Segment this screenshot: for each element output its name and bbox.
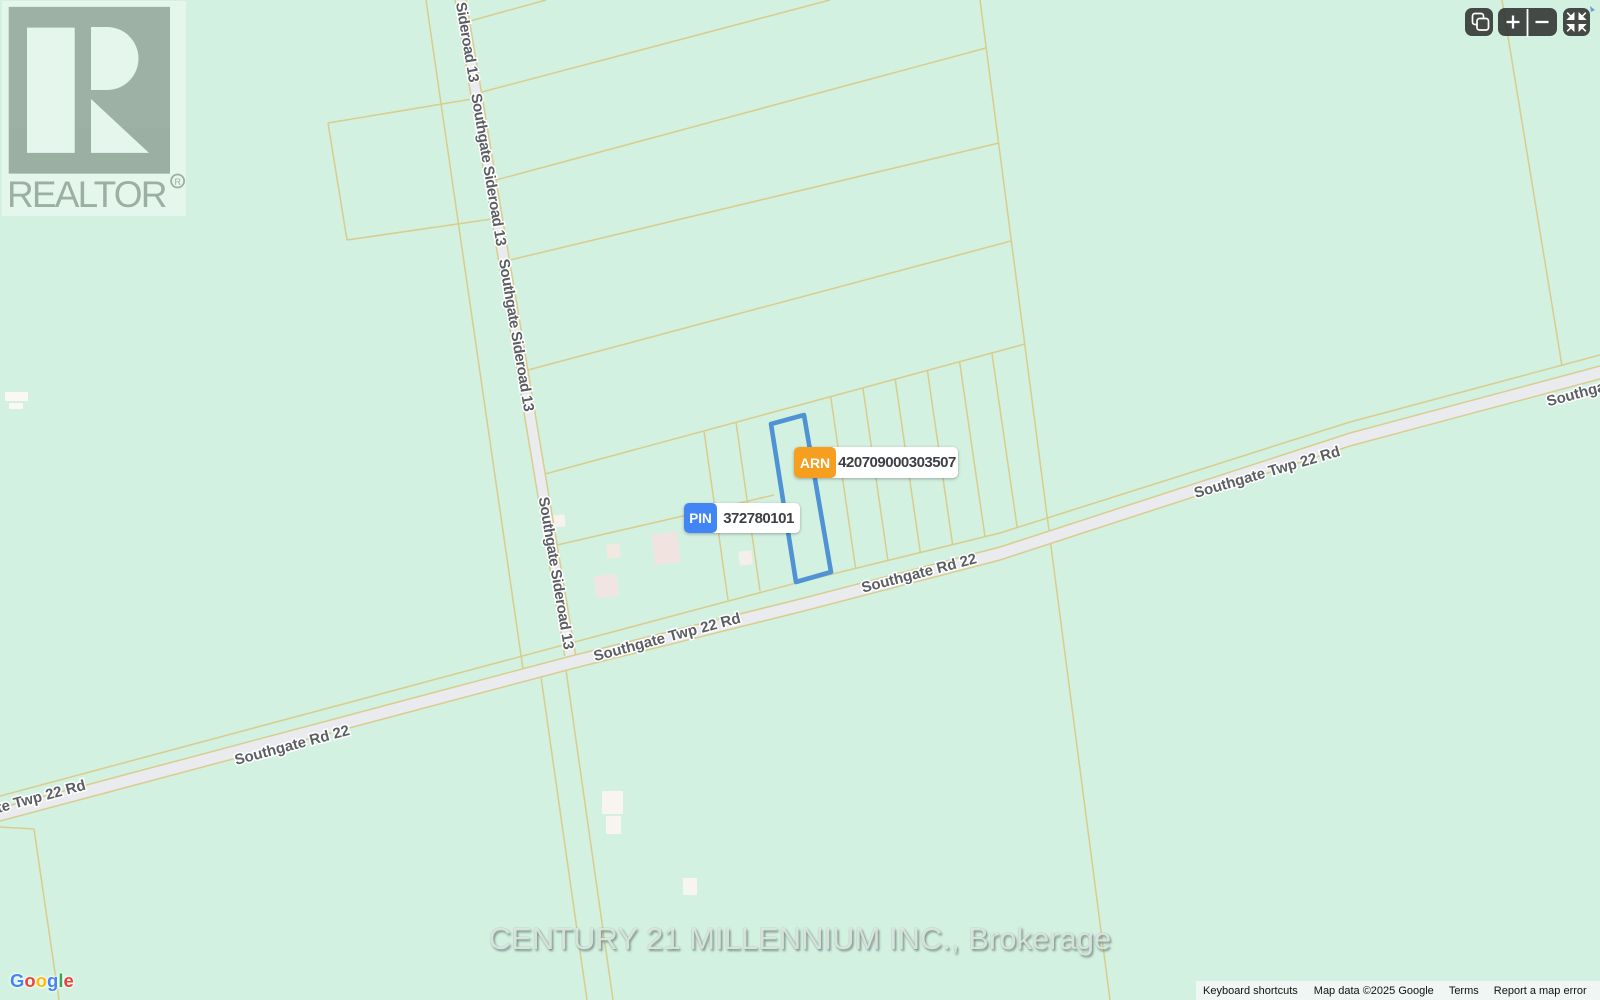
svg-text:REALTOR: REALTOR	[7, 174, 169, 215]
svg-text:R: R	[175, 177, 182, 187]
